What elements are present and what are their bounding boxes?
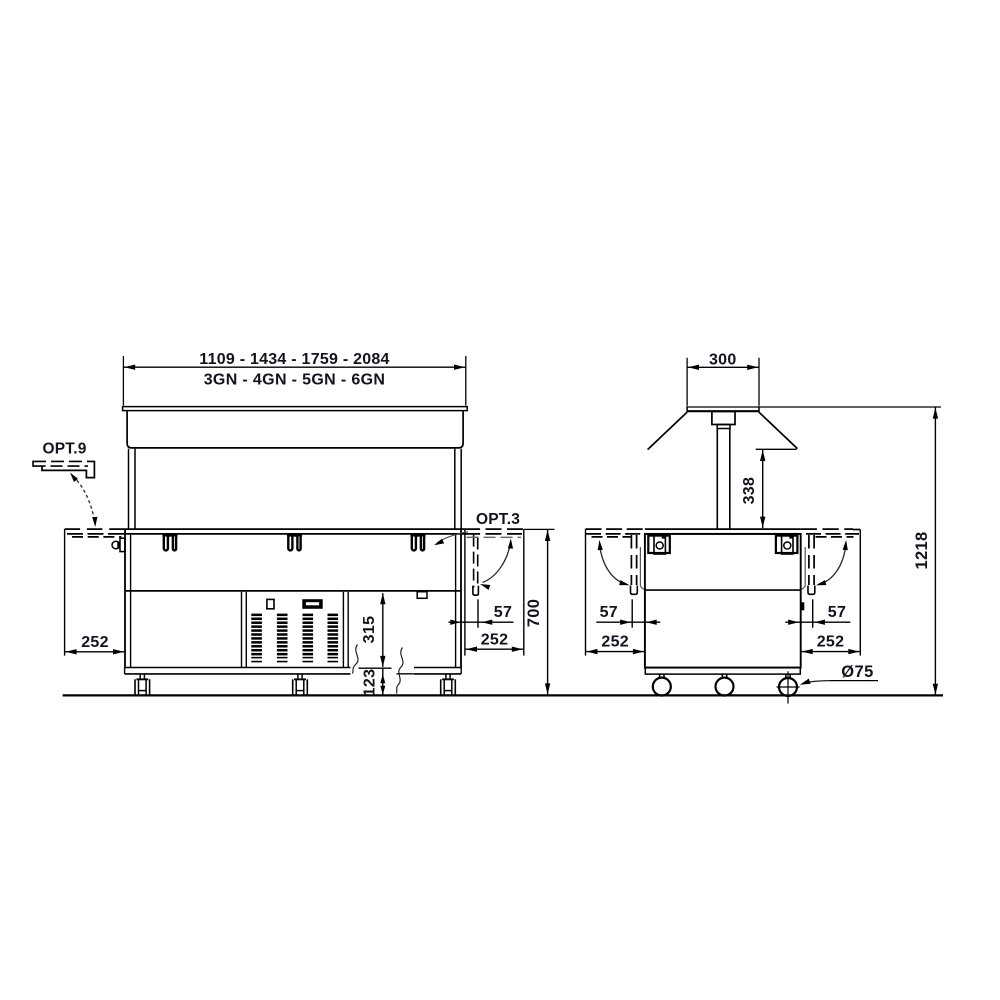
svg-text:315: 315 — [361, 616, 378, 644]
svg-text:Ø75: Ø75 — [841, 663, 873, 681]
svg-text:57: 57 — [494, 604, 512, 621]
svg-text:338: 338 — [741, 477, 758, 505]
svg-text:300: 300 — [709, 352, 737, 369]
svg-text:700: 700 — [525, 599, 543, 627]
svg-text:252: 252 — [481, 632, 509, 649]
svg-text:3GN - 4GN - 5GN - 6GN: 3GN - 4GN - 5GN - 6GN — [204, 371, 386, 388]
svg-text:1218: 1218 — [913, 532, 931, 570]
svg-text:57: 57 — [828, 604, 846, 621]
svg-text:123: 123 — [362, 669, 379, 697]
svg-text:OPT.3: OPT.3 — [476, 511, 520, 528]
svg-text:OPT.9: OPT.9 — [43, 441, 87, 458]
svg-text:57: 57 — [600, 604, 618, 621]
svg-text:252: 252 — [81, 634, 109, 651]
svg-text:252: 252 — [817, 634, 845, 651]
svg-text:1109 - 1434 - 1759 - 2084: 1109 - 1434 - 1759 - 2084 — [199, 351, 389, 368]
svg-text:252: 252 — [601, 634, 629, 651]
